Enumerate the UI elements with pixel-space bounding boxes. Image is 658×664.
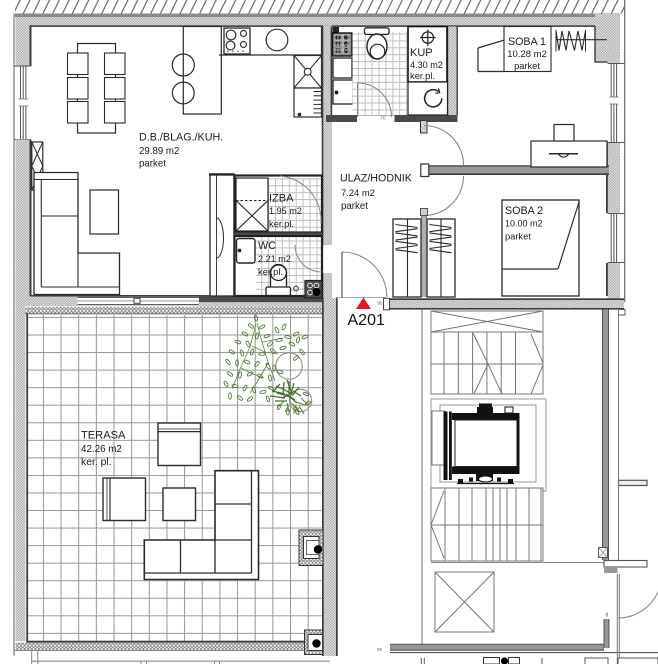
svg-text:10.28 m2: 10.28 m2 — [507, 49, 547, 60]
svg-text:7.24 m2: 7.24 m2 — [341, 187, 375, 198]
svg-text:D.B./BLAG./KUH.: D.B./BLAG./KUH. — [139, 132, 223, 144]
svg-text:42.26 m2: 42.26 m2 — [81, 444, 122, 455]
svg-text:parket: parket — [341, 201, 368, 212]
svg-text:8: 8 — [606, 613, 609, 619]
svg-text:10.00 m2: 10.00 m2 — [505, 219, 543, 229]
svg-text:TERASA: TERASA — [81, 430, 126, 442]
svg-text:WC: WC — [258, 240, 276, 252]
svg-text:ker.pl.: ker.pl. — [258, 266, 283, 277]
svg-text:95: 95 — [378, 301, 384, 306]
svg-text:IZBA: IZBA — [269, 193, 294, 205]
svg-text:ker.pl.: ker.pl. — [269, 218, 294, 229]
svg-text:ULAZ/HODNIK: ULAZ/HODNIK — [340, 173, 413, 185]
svg-text:parket: parket — [505, 232, 531, 242]
svg-text:29.89 m2: 29.89 m2 — [139, 146, 179, 157]
svg-text:SOBA 1: SOBA 1 — [508, 36, 546, 48]
svg-text:parket: parket — [139, 159, 166, 170]
svg-text:ker. pl.: ker. pl. — [81, 457, 112, 468]
svg-text:parket: parket — [514, 61, 540, 71]
svg-text:95: 95 — [377, 647, 383, 652]
svg-text:ker.pl.: ker.pl. — [410, 70, 435, 81]
svg-text:4.30 m2: 4.30 m2 — [410, 60, 443, 70]
svg-text:SOBA 2: SOBA 2 — [505, 205, 543, 217]
svg-text:1.95 m2: 1.95 m2 — [269, 206, 302, 216]
svg-text:2.21 m2: 2.21 m2 — [258, 254, 291, 264]
svg-text:KUP: KUP — [410, 47, 433, 59]
svg-text:A201: A201 — [348, 312, 385, 329]
svg-text:70: 70 — [380, 116, 386, 122]
